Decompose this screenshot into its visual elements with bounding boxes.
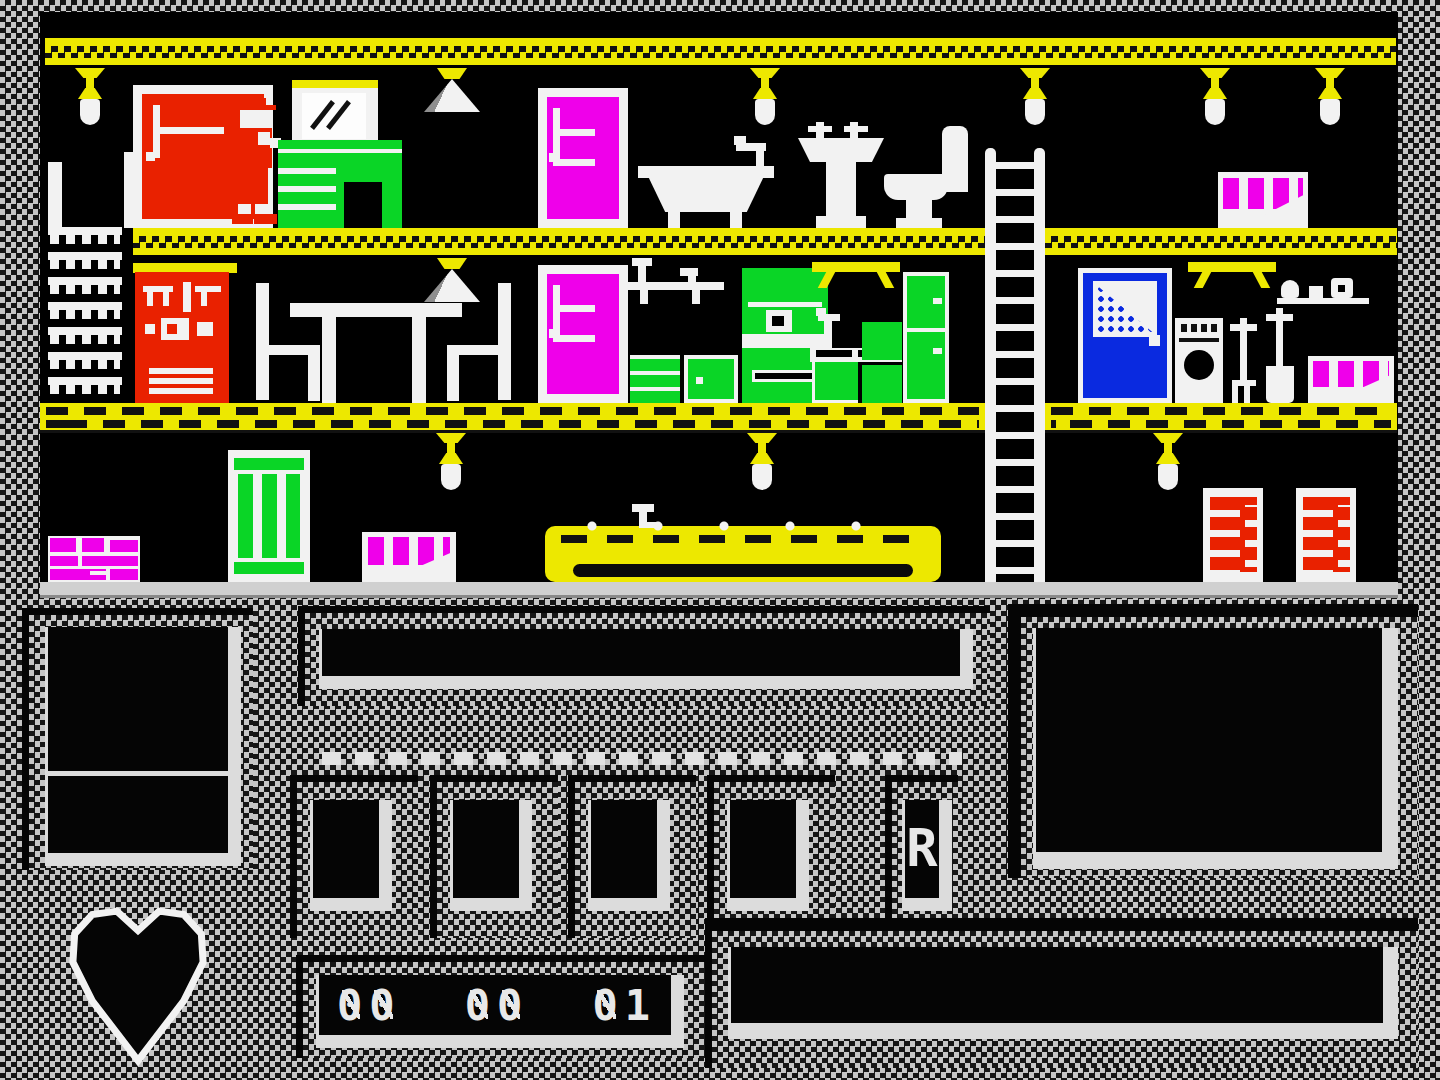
ceiling-lamp-icon bbox=[1020, 68, 1050, 126]
yellow-wall-table bbox=[812, 262, 900, 288]
ladder-rung bbox=[996, 243, 1034, 250]
ladder-rung bbox=[996, 189, 1034, 196]
hud-bottom-right-panel bbox=[705, 918, 1418, 1068]
lamp-mount bbox=[1200, 68, 1230, 78]
wash-basin bbox=[798, 122, 884, 228]
wall-shelf-items bbox=[1277, 274, 1369, 304]
shelf-item bbox=[147, 292, 153, 306]
stair-edge bbox=[48, 327, 122, 335]
beam-edge bbox=[40, 430, 985, 433]
kitchen-cabinet bbox=[862, 322, 902, 360]
beam-checker bbox=[45, 46, 1396, 58]
stair-edge bbox=[48, 352, 122, 360]
stair-teeth bbox=[50, 260, 120, 269]
hud-score-panel: 00 00 01 bbox=[296, 955, 706, 1058]
lamp-mount bbox=[1153, 433, 1183, 443]
washing-machine bbox=[1175, 318, 1223, 403]
mirror-top-trim bbox=[292, 80, 378, 88]
bathtub bbox=[638, 136, 774, 228]
lamp-flare bbox=[1023, 88, 1047, 99]
radiator-bars bbox=[238, 474, 300, 558]
unit-vent-line bbox=[149, 378, 213, 384]
triangle-lamp-icon bbox=[424, 68, 480, 112]
hud-left-panel bbox=[22, 608, 253, 870]
score-group: 00 bbox=[335, 981, 400, 1030]
mirror-glass bbox=[302, 93, 366, 139]
lamp-bulb bbox=[752, 464, 772, 490]
beam-strip bbox=[1045, 228, 1397, 236]
magenta-key-radiator bbox=[1308, 356, 1394, 403]
fridge-handle bbox=[933, 298, 942, 304]
beam-edge bbox=[133, 255, 985, 258]
kitchen-cupboard bbox=[684, 355, 738, 403]
lamp-stem bbox=[761, 78, 769, 88]
washer-door bbox=[1184, 350, 1214, 380]
wally-character bbox=[224, 98, 284, 230]
floor-beam-upper-right bbox=[1045, 228, 1397, 258]
shelf-box bbox=[1309, 286, 1323, 298]
red-shelf-unit bbox=[135, 272, 229, 403]
fridge-handle bbox=[933, 348, 942, 354]
wall-table-leg bbox=[1253, 272, 1271, 288]
stair-teeth bbox=[50, 235, 120, 244]
spade-handle bbox=[1266, 314, 1293, 321]
beam-strip bbox=[45, 38, 1396, 46]
inventory-slot-1 bbox=[290, 775, 418, 938]
radiator-top-bar bbox=[234, 458, 304, 470]
kitchen-drawers bbox=[630, 355, 680, 403]
cooker-counter bbox=[742, 334, 828, 348]
zx-spectrum-game-screen: { "palette": { "black": "#000000", "whit… bbox=[0, 0, 1440, 1080]
ladder-rung bbox=[996, 162, 1034, 169]
wall-table-top bbox=[1188, 262, 1276, 272]
inventory-slot-display bbox=[588, 800, 670, 911]
magenta-door bbox=[538, 265, 628, 403]
magenta-key-radiator bbox=[1218, 172, 1308, 228]
inventory-slot-3 bbox=[568, 775, 696, 938]
indicator-letter: R bbox=[905, 800, 939, 896]
door-panel-line bbox=[153, 127, 224, 134]
lamp-mount bbox=[1020, 68, 1050, 78]
lamp-bulb bbox=[1025, 99, 1045, 125]
stair-teeth bbox=[50, 335, 120, 344]
ladder-rung bbox=[996, 270, 1034, 277]
beam-strip bbox=[133, 248, 985, 255]
lamp-stem bbox=[1031, 78, 1039, 88]
dresser-top-edge bbox=[278, 149, 402, 153]
basin-bowl bbox=[798, 138, 884, 162]
shelf-item bbox=[195, 286, 221, 292]
dining-table-top bbox=[290, 303, 462, 317]
fork-shaft bbox=[1240, 331, 1247, 380]
beam-checker bbox=[1045, 236, 1397, 248]
ladder-rung bbox=[996, 459, 1034, 466]
panel-divider-line bbox=[48, 771, 228, 776]
score-digit: 0 bbox=[495, 981, 527, 1030]
lamp-mount bbox=[747, 433, 777, 443]
lamp-flare bbox=[1203, 88, 1227, 99]
jar-label bbox=[1338, 285, 1345, 292]
stair-teeth bbox=[50, 360, 120, 369]
lamp-flare bbox=[439, 453, 463, 464]
shelf-item bbox=[145, 324, 155, 334]
chair-leg bbox=[308, 355, 320, 401]
lamp-bulb bbox=[755, 99, 775, 125]
lamp-mount bbox=[750, 68, 780, 78]
green-fridge bbox=[903, 272, 949, 403]
ceiling-lamp-icon bbox=[1315, 68, 1345, 126]
fixture-tap bbox=[632, 258, 652, 266]
door-window bbox=[1093, 281, 1157, 337]
magenta-bricks bbox=[48, 536, 140, 582]
beam-dashes bbox=[1051, 407, 1391, 415]
ceiling-lamp-icon bbox=[75, 68, 105, 126]
hud-bottom-right-display bbox=[728, 947, 1398, 1039]
lamp-stem bbox=[86, 78, 94, 88]
radiator-stripes bbox=[1240, 497, 1257, 572]
sink-cabinet bbox=[812, 362, 858, 403]
door-panel-line bbox=[553, 305, 595, 312]
score-digit: 0 bbox=[367, 981, 399, 1030]
ladder-rung bbox=[996, 216, 1034, 223]
chair-back bbox=[498, 283, 511, 400]
brick bbox=[110, 540, 138, 552]
fork-handle bbox=[1230, 324, 1257, 331]
floor-beam-lower-left bbox=[40, 403, 985, 433]
fork-tines bbox=[1232, 380, 1256, 403]
lamp-flare bbox=[1318, 88, 1342, 99]
stair-edge bbox=[48, 302, 122, 310]
bath-foot bbox=[730, 212, 742, 228]
lamp-bulb bbox=[80, 99, 100, 125]
lamp-bulb bbox=[1205, 99, 1225, 125]
lamp-mount bbox=[436, 433, 466, 443]
cooker-line bbox=[748, 302, 822, 307]
fixture-hook bbox=[692, 290, 700, 304]
table-leg bbox=[322, 317, 336, 403]
brick-wall bbox=[50, 556, 138, 580]
beam-strip bbox=[1045, 248, 1397, 255]
garden-fork bbox=[1228, 318, 1262, 403]
triangle-lamp-icon bbox=[424, 258, 480, 302]
toilet-base bbox=[896, 218, 942, 228]
spade-blade bbox=[1266, 366, 1294, 403]
shelf-item bbox=[183, 282, 191, 312]
ladder-rung bbox=[996, 378, 1034, 385]
chair-seat bbox=[256, 345, 320, 355]
washer-line bbox=[1179, 338, 1219, 342]
shelf-item bbox=[201, 292, 207, 306]
hud-right-panel bbox=[1008, 604, 1418, 878]
beam-dashes bbox=[46, 407, 979, 415]
fixture-rail bbox=[628, 282, 724, 290]
wall-table-leg bbox=[877, 272, 895, 288]
ladder-rail bbox=[1034, 148, 1045, 582]
sofa-stitching bbox=[561, 535, 925, 543]
floor-beam-lower-right bbox=[1045, 403, 1397, 433]
table-leg bbox=[412, 317, 426, 403]
chair-seat bbox=[447, 345, 511, 355]
dresser-opening bbox=[344, 182, 382, 228]
ceiling-lamp-icon bbox=[1200, 68, 1230, 126]
lamp-mount bbox=[437, 68, 467, 79]
fixture-pipe bbox=[638, 264, 646, 282]
score-group: 00 bbox=[463, 981, 528, 1030]
hud-indicator-box: R bbox=[885, 775, 958, 938]
sofa-seat-shadow bbox=[573, 564, 913, 577]
ladder-rung bbox=[996, 297, 1034, 304]
cooker-panel bbox=[766, 310, 792, 332]
door-knob bbox=[146, 152, 155, 161]
beam-dashes bbox=[1051, 420, 1391, 428]
inventory-slot-2 bbox=[430, 775, 558, 938]
heart-icon bbox=[50, 888, 226, 1068]
score-display: 00 00 01 bbox=[316, 975, 684, 1048]
lamp-flare bbox=[1156, 453, 1180, 464]
inventory-slot-display bbox=[450, 800, 532, 911]
ceiling-lamp-icon bbox=[436, 433, 466, 491]
door-knob bbox=[1149, 335, 1160, 346]
beam-checker bbox=[133, 236, 985, 248]
wall-taps-fixture bbox=[628, 256, 724, 304]
toilet bbox=[884, 126, 970, 228]
green-dresser bbox=[278, 140, 402, 228]
dresser-shelf bbox=[278, 204, 336, 210]
wall-mirror bbox=[292, 80, 378, 146]
door-panel-line bbox=[553, 159, 595, 166]
score-groups-row: 00 00 01 bbox=[319, 975, 671, 1035]
beam-edge bbox=[45, 65, 1396, 68]
lamp-bulb bbox=[441, 464, 461, 490]
ladder-rung bbox=[996, 486, 1034, 493]
door-knob bbox=[549, 153, 558, 162]
bath-body bbox=[638, 178, 774, 212]
cooker-panel-window bbox=[772, 316, 784, 326]
door-panel-line bbox=[553, 129, 595, 136]
stair-edge bbox=[48, 377, 122, 385]
magenta-key-radiator bbox=[362, 532, 456, 582]
basin-base bbox=[816, 216, 866, 228]
green-radiator bbox=[228, 450, 310, 582]
hud-dash-rail bbox=[322, 752, 962, 765]
toilet-bowl bbox=[884, 174, 948, 200]
score-digit: 0 bbox=[335, 981, 367, 1030]
floor-beam-upper-left bbox=[133, 228, 985, 258]
fridge-split bbox=[907, 328, 945, 332]
lamp-mount bbox=[1315, 68, 1345, 78]
hud-indicator-display: R bbox=[902, 800, 952, 911]
bath-rim bbox=[638, 166, 774, 178]
wall-table-leg bbox=[1194, 272, 1212, 288]
shelf-item-detail bbox=[167, 324, 177, 334]
yellow-wall-table bbox=[1188, 262, 1276, 288]
stair-edge bbox=[48, 252, 122, 260]
washer-dials bbox=[1181, 324, 1217, 332]
shelf-item bbox=[161, 318, 189, 340]
beam-strip bbox=[45, 58, 1396, 65]
ladder-rung bbox=[996, 567, 1034, 574]
hud-right-panel-display bbox=[1033, 628, 1398, 869]
lamp-bulb bbox=[1320, 99, 1340, 125]
stair-teeth bbox=[50, 385, 120, 394]
ceiling-lamp-icon bbox=[1153, 433, 1183, 491]
small-white-object bbox=[624, 504, 664, 536]
ladder-rung bbox=[996, 324, 1034, 331]
inventory-slot-display bbox=[310, 800, 392, 911]
score-digit: 1 bbox=[623, 981, 655, 1030]
ladder-rung bbox=[996, 540, 1034, 547]
radiator-bottom-bar bbox=[234, 562, 304, 574]
toilet-pedestal bbox=[906, 200, 932, 218]
hud-left-panel-display bbox=[45, 627, 241, 866]
brick bbox=[50, 538, 76, 552]
bath-foot bbox=[668, 212, 680, 228]
chair-leg bbox=[447, 355, 459, 401]
mortar-squiggle bbox=[90, 571, 108, 575]
shelf-item bbox=[197, 322, 213, 336]
shelf-board bbox=[1277, 298, 1369, 304]
fixture-hook bbox=[640, 290, 648, 304]
wall-strip bbox=[48, 162, 62, 228]
shelf-item bbox=[163, 292, 169, 306]
object-foot bbox=[644, 522, 658, 528]
brick bbox=[82, 538, 104, 552]
lamp-mount bbox=[75, 68, 105, 78]
ceiling-lamp-icon bbox=[747, 433, 777, 491]
stair-teeth bbox=[50, 285, 120, 294]
lamp-stem bbox=[1164, 443, 1172, 453]
wall-table-leg bbox=[818, 272, 836, 288]
lamp-shade bbox=[424, 79, 480, 112]
lamp-bulb bbox=[1158, 464, 1178, 490]
ladder-rung bbox=[996, 351, 1034, 358]
game-room-background bbox=[40, 12, 1398, 598]
lamp-flare bbox=[750, 453, 774, 464]
lamp-stem bbox=[758, 443, 766, 453]
red-column-radiator bbox=[1203, 488, 1263, 582]
basin-pedestal bbox=[826, 162, 856, 216]
hud-message-bar bbox=[298, 606, 990, 706]
ladder-rung bbox=[996, 513, 1034, 520]
dresser-shelf bbox=[278, 186, 336, 192]
unit-vent-line bbox=[149, 388, 213, 394]
spade-shaft bbox=[1276, 321, 1283, 366]
dresser-shelf bbox=[278, 168, 336, 174]
radiator-stripes bbox=[1333, 497, 1350, 572]
inventory-slot-display bbox=[727, 800, 809, 911]
score-digit: 0 bbox=[463, 981, 495, 1030]
comb-stairs bbox=[48, 227, 124, 403]
lamp-mount bbox=[437, 258, 467, 269]
ceiling-lamp-icon bbox=[750, 68, 780, 126]
cooker-slot bbox=[752, 370, 818, 382]
beam-edge bbox=[1045, 430, 1397, 433]
score-group: 01 bbox=[590, 981, 655, 1030]
mortar-line bbox=[50, 566, 138, 569]
object-top bbox=[632, 504, 654, 512]
score-digit: 0 bbox=[590, 981, 622, 1030]
chair-back bbox=[256, 283, 269, 400]
magenta-door bbox=[538, 88, 628, 228]
lamp-flare bbox=[78, 88, 102, 99]
ladder bbox=[985, 148, 1045, 582]
window-frost-pattern bbox=[1096, 284, 1155, 333]
wall-table-top bbox=[812, 262, 900, 272]
beam-dashes bbox=[46, 420, 979, 428]
shelf-jar bbox=[1331, 278, 1353, 298]
inventory-slot-4 bbox=[707, 775, 835, 938]
basin-tap-handle bbox=[808, 126, 832, 132]
lamp-flare bbox=[753, 88, 777, 99]
ladder-rail bbox=[985, 148, 996, 582]
cupboard-knob bbox=[696, 377, 703, 384]
lamp-shade bbox=[424, 269, 480, 302]
ground-floor bbox=[40, 582, 1398, 598]
stair-teeth bbox=[50, 310, 120, 319]
lamp-stem bbox=[447, 443, 455, 453]
sink-tap-body bbox=[824, 314, 832, 350]
basin-tap-handle bbox=[844, 126, 868, 132]
yellow-sofa bbox=[545, 526, 941, 582]
ceiling-beam bbox=[45, 38, 1396, 68]
door-panel-line bbox=[553, 335, 595, 342]
hud-message-display bbox=[319, 629, 973, 689]
lamp-stem bbox=[1326, 78, 1334, 88]
door-knob bbox=[549, 329, 558, 338]
blue-door bbox=[1078, 268, 1172, 403]
beam-edge bbox=[1045, 255, 1397, 258]
stair-edge bbox=[48, 277, 122, 285]
ladder-rung bbox=[996, 405, 1034, 412]
lamp-stem bbox=[1211, 78, 1219, 88]
shelf-pot bbox=[1281, 280, 1299, 298]
mortar-line bbox=[78, 556, 82, 566]
red-column-radiator bbox=[1296, 488, 1356, 582]
kitchen-cabinet bbox=[862, 365, 902, 403]
garden-spade bbox=[1262, 308, 1300, 403]
sink-basin-slot bbox=[816, 350, 852, 357]
unit-vent-line bbox=[149, 368, 213, 374]
stair-edge bbox=[48, 227, 122, 235]
ladder-rung bbox=[996, 432, 1034, 439]
